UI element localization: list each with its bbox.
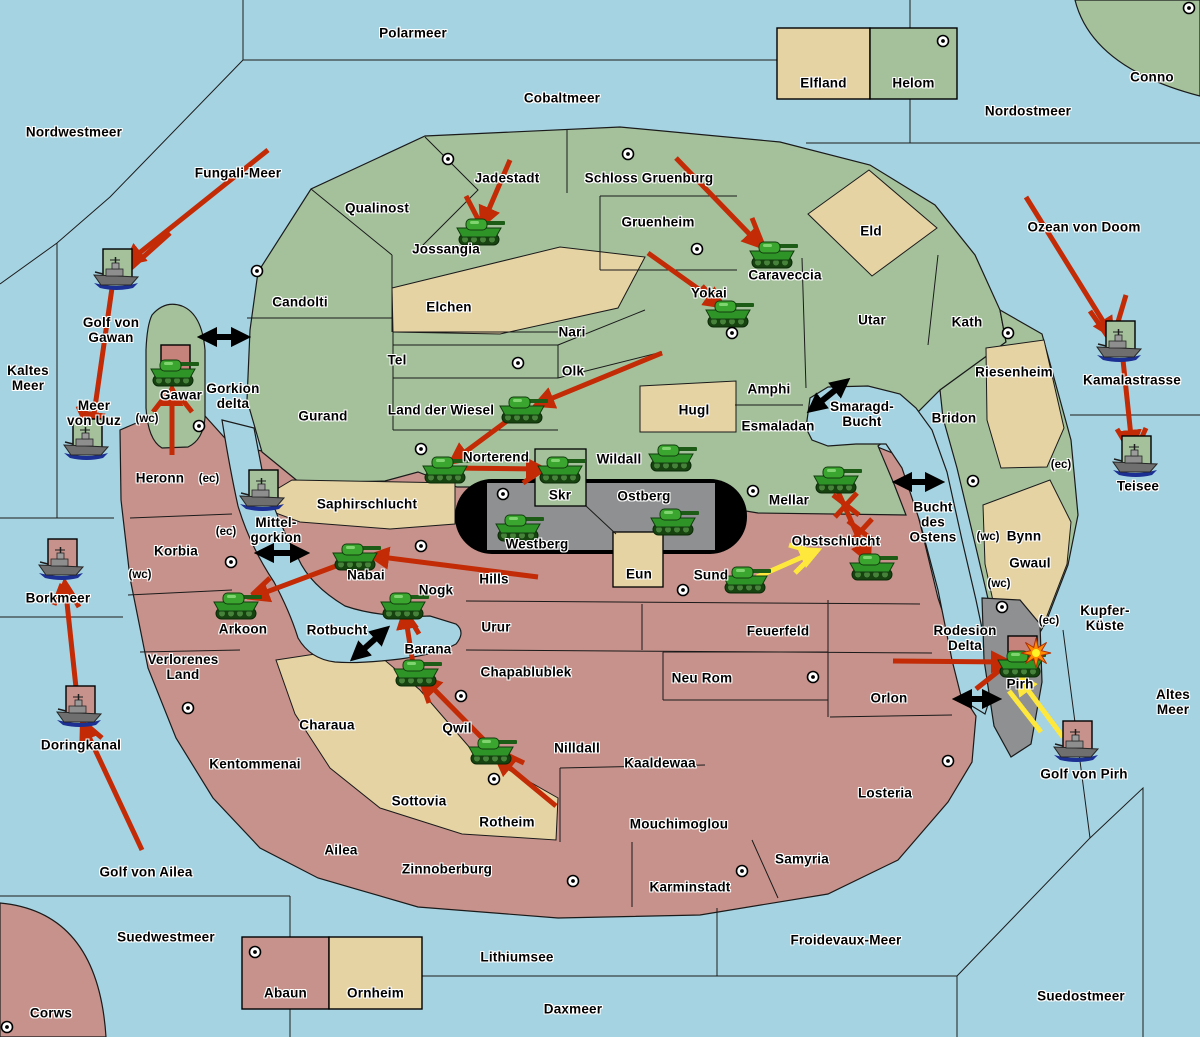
attack-arrow <box>676 158 760 245</box>
attack-arrow <box>1026 197 1111 334</box>
tank-unit[interactable] <box>750 242 798 268</box>
tank-unit[interactable] <box>394 660 442 686</box>
legend-box-ornheim <box>329 937 422 1009</box>
city-icon-center <box>626 152 630 156</box>
attack-arrow <box>523 471 541 483</box>
attack-arrow <box>153 394 167 412</box>
tank-unit[interactable] <box>814 467 862 493</box>
city-icon-center <box>681 588 685 592</box>
attack-arrow <box>373 556 538 577</box>
attack-arrow <box>538 353 662 404</box>
city-icon-center <box>253 950 257 954</box>
tank-unit[interactable] <box>214 593 262 619</box>
attack-arrow <box>424 679 488 744</box>
city-icon-center <box>811 675 815 679</box>
tank-unit[interactable] <box>538 457 586 483</box>
attack-arrow <box>498 758 556 806</box>
attack-arrow <box>131 233 170 268</box>
units-and-arrows-layer <box>0 0 1200 1037</box>
city-icon-center <box>446 157 450 161</box>
tank-unit[interactable] <box>381 593 429 619</box>
tank-unit[interactable] <box>333 544 381 570</box>
city-icon-center <box>459 694 463 698</box>
city-icon-center <box>501 492 505 496</box>
city-icon-center <box>419 544 423 548</box>
tank-unit[interactable] <box>850 554 898 580</box>
attack-arrow <box>466 196 479 221</box>
attack-arrow <box>178 394 192 412</box>
city-icon-center <box>730 331 734 335</box>
attack-arrow <box>1123 360 1132 446</box>
tank-unit[interactable] <box>649 445 697 471</box>
support-arrow <box>789 545 814 552</box>
city-icon-center <box>946 759 950 763</box>
tank-unit[interactable] <box>496 515 544 541</box>
city-icon-center <box>1187 6 1191 10</box>
city-icon-center <box>695 247 699 251</box>
city-icon-center <box>229 560 233 564</box>
attack-arrow <box>83 724 142 850</box>
city-icon-center <box>1006 331 1010 335</box>
city-icon-center <box>516 361 520 365</box>
city-icon-center <box>186 706 190 710</box>
game-map: ElflandHelomAbaunOrnheimNordwestmeerPola… <box>0 0 1200 1037</box>
transit-link-icon <box>356 631 384 656</box>
city-icon-center <box>941 39 945 43</box>
attack-arrow <box>128 150 268 262</box>
tank-unit[interactable] <box>500 397 548 423</box>
city-icon-center <box>492 777 496 781</box>
tank-unit[interactable] <box>457 219 505 245</box>
city-icon-center <box>1000 605 1004 609</box>
attack-arrow <box>92 288 112 428</box>
city-icon-center <box>740 869 744 873</box>
tank-unit[interactable] <box>723 567 771 593</box>
city-icon-center <box>571 879 575 883</box>
city-icon-center <box>751 489 755 493</box>
transit-link-icon <box>813 383 844 408</box>
tank-unit[interactable] <box>151 360 199 386</box>
attack-arrow <box>483 160 510 223</box>
city-icon-center <box>419 447 423 451</box>
tank-unit[interactable] <box>423 457 471 483</box>
legend-box-elfland <box>777 28 870 99</box>
tank-unit[interactable] <box>651 509 699 535</box>
tank-unit[interactable] <box>706 301 754 327</box>
attack-arrow <box>54 584 62 605</box>
city-icon-center <box>197 424 201 428</box>
city-icon-center <box>255 269 259 273</box>
tank-unit[interactable] <box>469 738 517 764</box>
attack-arrow <box>893 661 1007 662</box>
city-icon-center <box>5 1025 9 1029</box>
explosion-icon-core <box>1032 649 1040 657</box>
city-icon-center <box>971 479 975 483</box>
